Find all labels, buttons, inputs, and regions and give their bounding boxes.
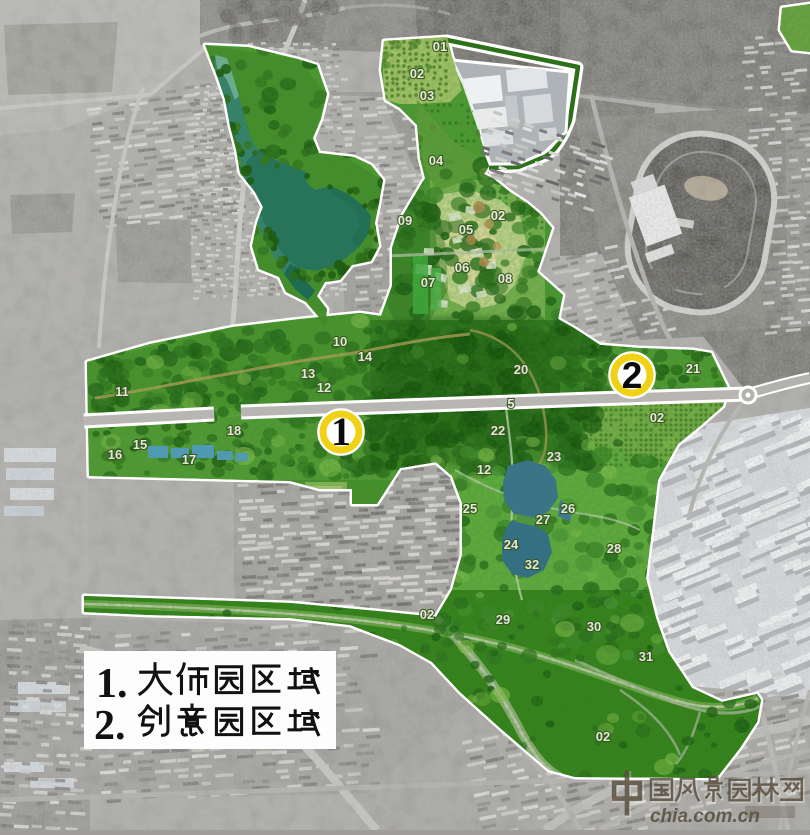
svg-text:31: 31 bbox=[639, 649, 653, 664]
svg-text:10: 10 bbox=[333, 334, 347, 349]
svg-text:11: 11 bbox=[115, 384, 129, 399]
svg-text:02: 02 bbox=[491, 208, 505, 223]
svg-text:02: 02 bbox=[596, 729, 610, 744]
svg-text:30: 30 bbox=[587, 619, 601, 634]
svg-text:27: 27 bbox=[536, 512, 550, 527]
svg-text:02: 02 bbox=[420, 607, 434, 622]
svg-text:2.: 2. bbox=[94, 703, 126, 749]
svg-text:1: 1 bbox=[331, 409, 351, 454]
svg-text:28: 28 bbox=[607, 541, 621, 556]
svg-text:23: 23 bbox=[547, 449, 561, 464]
svg-text:29: 29 bbox=[496, 612, 510, 627]
svg-text:20: 20 bbox=[514, 362, 528, 377]
svg-text:2: 2 bbox=[622, 355, 643, 396]
svg-text:13: 13 bbox=[301, 366, 315, 381]
svg-text:12: 12 bbox=[317, 380, 331, 395]
svg-text:5: 5 bbox=[507, 396, 514, 411]
svg-text:22: 22 bbox=[491, 423, 505, 438]
svg-text:chia.com.cn: chia.com.cn bbox=[650, 806, 760, 827]
svg-text:12: 12 bbox=[477, 462, 491, 477]
svg-text:06: 06 bbox=[455, 260, 469, 275]
svg-text:25: 25 bbox=[463, 501, 477, 516]
svg-text:1.: 1. bbox=[96, 661, 128, 707]
svg-text:15: 15 bbox=[133, 437, 147, 452]
svg-text:14: 14 bbox=[358, 349, 373, 364]
svg-text:17: 17 bbox=[182, 452, 196, 467]
svg-text:05: 05 bbox=[459, 222, 473, 237]
svg-text:03: 03 bbox=[420, 88, 434, 103]
svg-text:01: 01 bbox=[433, 39, 447, 54]
svg-text:24: 24 bbox=[504, 537, 519, 552]
svg-text:16: 16 bbox=[108, 447, 122, 462]
svg-text:32: 32 bbox=[525, 557, 539, 572]
svg-text:18: 18 bbox=[227, 423, 241, 438]
svg-text:09: 09 bbox=[398, 213, 412, 228]
svg-text:08: 08 bbox=[498, 271, 512, 286]
svg-text:07: 07 bbox=[421, 275, 435, 290]
svg-text:21: 21 bbox=[686, 361, 700, 376]
svg-text:26: 26 bbox=[561, 501, 575, 516]
svg-text:02: 02 bbox=[410, 66, 424, 81]
svg-text:04: 04 bbox=[429, 153, 444, 168]
svg-text:02: 02 bbox=[650, 410, 664, 425]
